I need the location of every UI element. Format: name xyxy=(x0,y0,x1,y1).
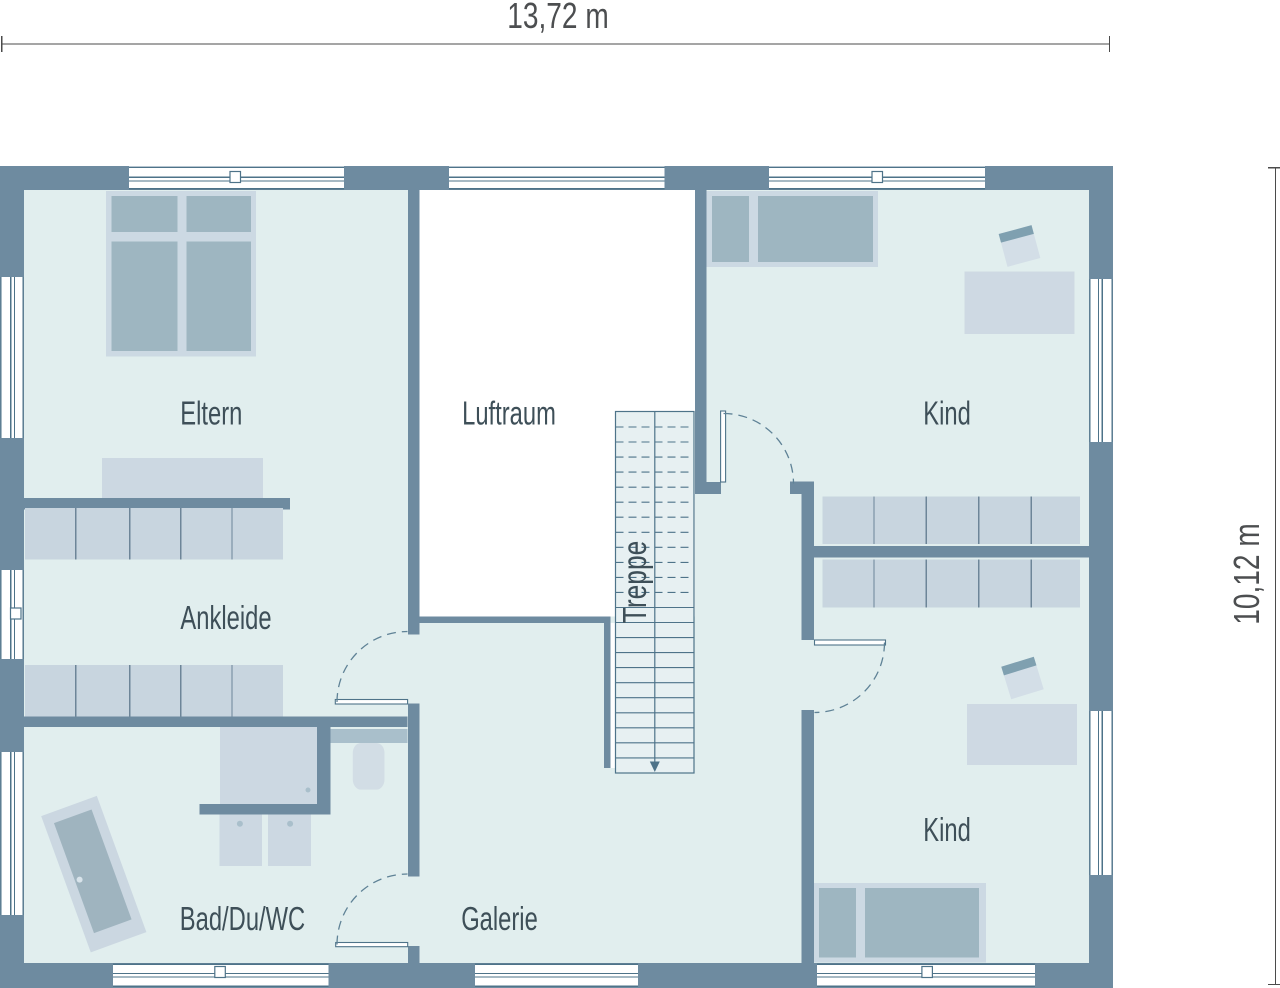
svg-text:Kind: Kind xyxy=(923,396,971,433)
svg-text:Galerie: Galerie xyxy=(461,901,538,938)
svg-text:Treppe: Treppe xyxy=(617,541,653,624)
svg-text:13,72 m: 13,72 m xyxy=(507,0,608,36)
svg-text:Bad/Du/WC: Bad/Du/WC xyxy=(180,901,305,938)
svg-text:Kind: Kind xyxy=(923,812,971,849)
svg-text:Ankleide: Ankleide xyxy=(180,600,271,637)
svg-text:Luftraum: Luftraum xyxy=(462,396,556,433)
svg-text:10,12 m: 10,12 m xyxy=(1227,523,1267,624)
svg-text:Eltern: Eltern xyxy=(180,396,242,433)
